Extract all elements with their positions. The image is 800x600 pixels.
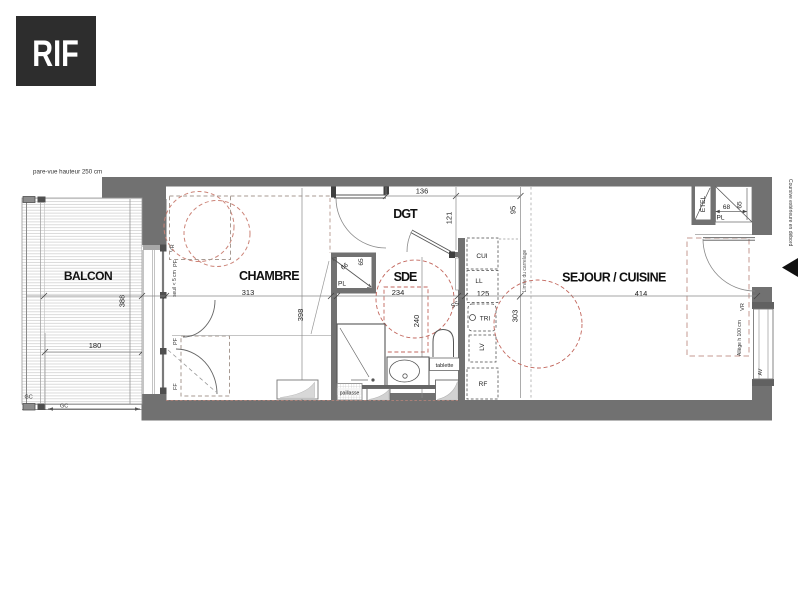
svg-text:Limite du carrelage: Limite du carrelage (522, 250, 528, 293)
svg-text:FF: FF (173, 383, 179, 390)
svg-text:TRI: TRI (480, 316, 491, 323)
svg-text:BALCON: BALCON (64, 269, 112, 283)
svg-text:Allège h 100 cm: Allège h 100 cm (737, 320, 743, 356)
svg-text:CUI: CUI (476, 253, 487, 260)
svg-text:LV: LV (479, 343, 486, 351)
svg-text:SDE: SDE (394, 270, 417, 284)
svg-text:398: 398 (296, 309, 305, 322)
svg-text:95: 95 (509, 206, 518, 214)
svg-text:LL: LL (475, 278, 483, 285)
svg-text:Coursive extérieure en débord: Coursive extérieure en débord (787, 179, 793, 246)
svg-text:65: 65 (737, 201, 744, 209)
svg-text:RIF: RIF (32, 34, 78, 75)
svg-text:tablette: tablette (436, 363, 454, 369)
svg-text:GC: GC (60, 404, 68, 410)
svg-text:VR: VR (170, 244, 176, 252)
svg-text:136: 136 (416, 187, 429, 196)
svg-text:SEJOUR / CUISINE: SEJOUR / CUISINE (562, 271, 666, 285)
svg-text:68: 68 (723, 204, 731, 211)
svg-text:65: 65 (358, 258, 365, 266)
svg-text:AV: AV (758, 368, 764, 375)
svg-text:125: 125 (477, 289, 490, 298)
svg-text:PL: PL (717, 215, 725, 222)
svg-text:414: 414 (635, 289, 648, 298)
svg-text:pare-vue hauteur 250 cm: pare-vue hauteur 250 cm (33, 169, 102, 176)
svg-text:RF: RF (479, 381, 488, 388)
svg-text:paillasse: paillasse (340, 391, 360, 397)
svg-text:ÉTEL: ÉTEL (698, 195, 707, 212)
svg-text:seuil < 5 cm: seuil < 5 cm (172, 270, 178, 297)
svg-text:CHAMBRE: CHAMBRE (239, 269, 299, 283)
svg-text:121: 121 (445, 212, 454, 225)
svg-text:240: 240 (412, 315, 421, 328)
svg-text:GC: GC (25, 395, 33, 401)
svg-text:PF: PF (173, 259, 179, 267)
svg-text:180: 180 (89, 341, 102, 350)
svg-text:DGT: DGT (393, 207, 418, 221)
svg-text:PL: PL (338, 281, 346, 288)
svg-text:303: 303 (511, 310, 520, 323)
svg-text:388: 388 (118, 295, 127, 308)
svg-text:PF: PF (173, 337, 179, 345)
svg-text:VR: VR (740, 303, 746, 311)
